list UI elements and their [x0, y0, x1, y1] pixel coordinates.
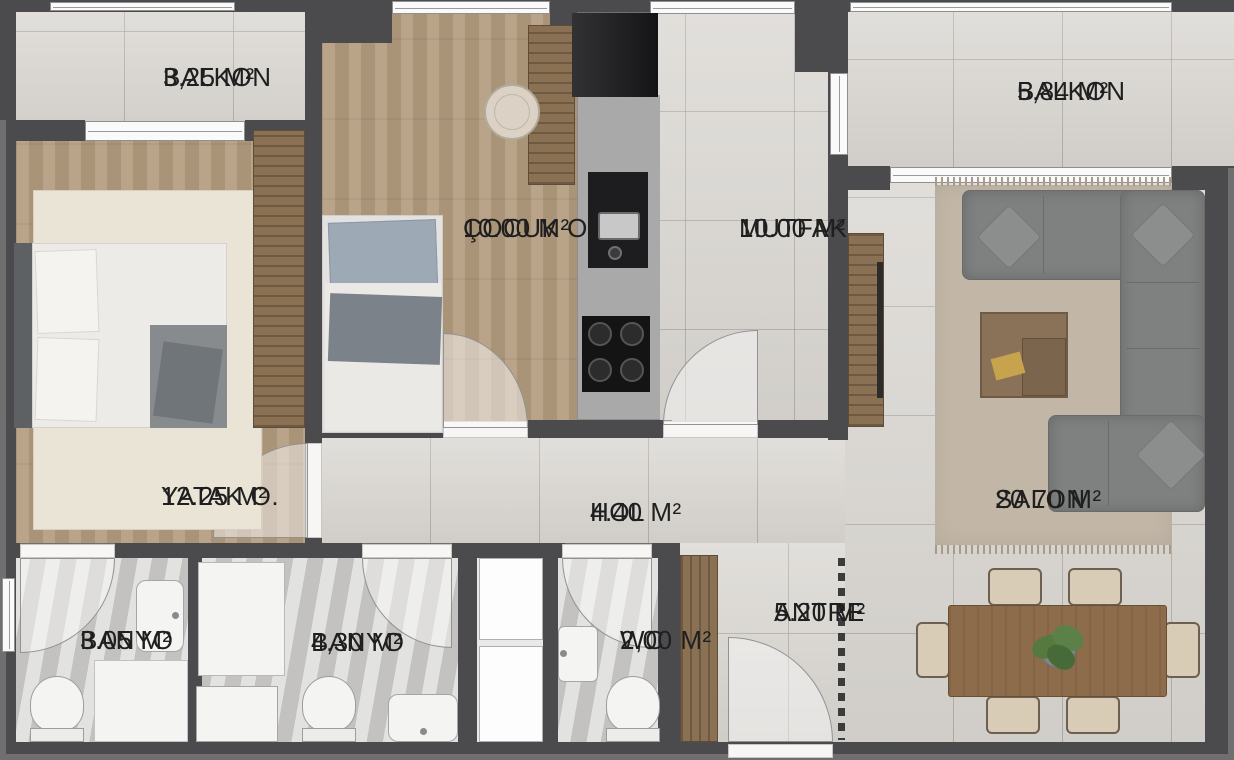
- outer-edge: [1228, 168, 1234, 760]
- room-area: 12.25 M²: [161, 481, 268, 512]
- room-area: 20.70 M²: [995, 484, 1102, 515]
- rug-fringe: [935, 545, 1172, 554]
- window-bath-small: [2, 578, 15, 652]
- window-bedroom-balcony: [85, 121, 245, 141]
- wall-segment: [16, 120, 85, 141]
- coffee-table-tray: [1022, 338, 1066, 396]
- sofa-seam: [1126, 348, 1199, 349]
- room-area: 5.20 M²: [774, 597, 866, 628]
- toilet: [302, 676, 356, 732]
- dining-chair: [1068, 568, 1122, 606]
- window-kitchen-balcony: [830, 73, 848, 155]
- outer-edge: [0, 120, 6, 760]
- wall-segment: [1172, 166, 1234, 190]
- wall-segment: [528, 420, 672, 438]
- wall-segment: [458, 543, 477, 742]
- dining-chair: [988, 568, 1042, 606]
- faucet: [172, 612, 179, 619]
- room-area: 4.40 M²: [590, 497, 682, 528]
- shaft-panel: [479, 558, 543, 640]
- pillow: [35, 249, 100, 334]
- faucet: [420, 728, 427, 735]
- floor-hall: [322, 438, 848, 543]
- wall-segment: [758, 420, 848, 438]
- wall-segment: [543, 543, 558, 742]
- rug-fringe: [935, 177, 1172, 186]
- burner: [588, 322, 612, 346]
- room-area: 10.00 M²: [463, 213, 570, 244]
- dining-chair: [1066, 696, 1120, 734]
- faucet: [560, 650, 567, 657]
- wardrobe-bedroom: [253, 130, 305, 428]
- shaft-panel: [479, 646, 543, 742]
- pillow: [328, 219, 438, 291]
- room-area: 10.00 M²: [739, 213, 846, 244]
- bed-blanket: [328, 293, 442, 365]
- toilet-tank: [30, 728, 84, 742]
- balcony-railing-left: [50, 2, 235, 11]
- window-kitchen-top: [650, 1, 795, 14]
- wall-segment: [322, 0, 392, 43]
- tv: [877, 262, 883, 398]
- room-area: 3,25 M²: [163, 62, 255, 93]
- outer-edge: [0, 754, 1234, 760]
- entry-door: [728, 744, 833, 758]
- wall-segment: [305, 0, 322, 443]
- sofa-seam: [1108, 421, 1109, 506]
- round-rug-inner: [494, 94, 530, 130]
- room-area: 3.05 M²: [80, 625, 172, 656]
- sofa-seam: [1126, 282, 1199, 283]
- balcony-railing-right: [850, 2, 1172, 12]
- toilet-tank: [606, 728, 660, 742]
- room-area: 2,00 M²: [620, 625, 712, 656]
- wall-segment: [115, 543, 362, 558]
- room-area: 4,30 M²: [311, 627, 403, 658]
- shower-tray: [94, 660, 188, 742]
- door-bath-large: [362, 544, 452, 558]
- burner: [620, 322, 644, 346]
- bed-blanket-fold: [153, 341, 223, 424]
- sofa-seam: [1043, 196, 1044, 274]
- dining-chair: [1164, 622, 1200, 678]
- toilet-tank: [302, 728, 356, 742]
- floor-plan: BALKON 3,25 M² ÇOCUK O. 10.00 M² MUTFAK …: [0, 0, 1234, 760]
- pillow: [35, 337, 100, 422]
- dining-chair: [916, 622, 950, 678]
- bed-headboard: [14, 243, 33, 428]
- burner: [588, 358, 612, 382]
- toilet: [30, 676, 84, 732]
- dining-chair: [986, 696, 1040, 734]
- door-bath-small: [20, 544, 115, 558]
- oven-knob: [608, 246, 622, 260]
- shower-tray: [198, 562, 285, 676]
- door-bedroom: [306, 443, 322, 538]
- wall-segment: [795, 0, 830, 72]
- refrigerator: [572, 13, 658, 97]
- toilet: [606, 676, 660, 732]
- burner: [620, 358, 644, 382]
- sofa-seam: [1120, 196, 1121, 274]
- window-kids-room: [392, 1, 550, 14]
- washing-machine: [196, 686, 278, 742]
- room-area: 5,84 M²: [1017, 76, 1109, 107]
- door-wc: [562, 544, 652, 558]
- oven-door: [598, 212, 640, 240]
- wall-segment: [845, 166, 890, 190]
- dashed-boundary-line: [838, 558, 845, 740]
